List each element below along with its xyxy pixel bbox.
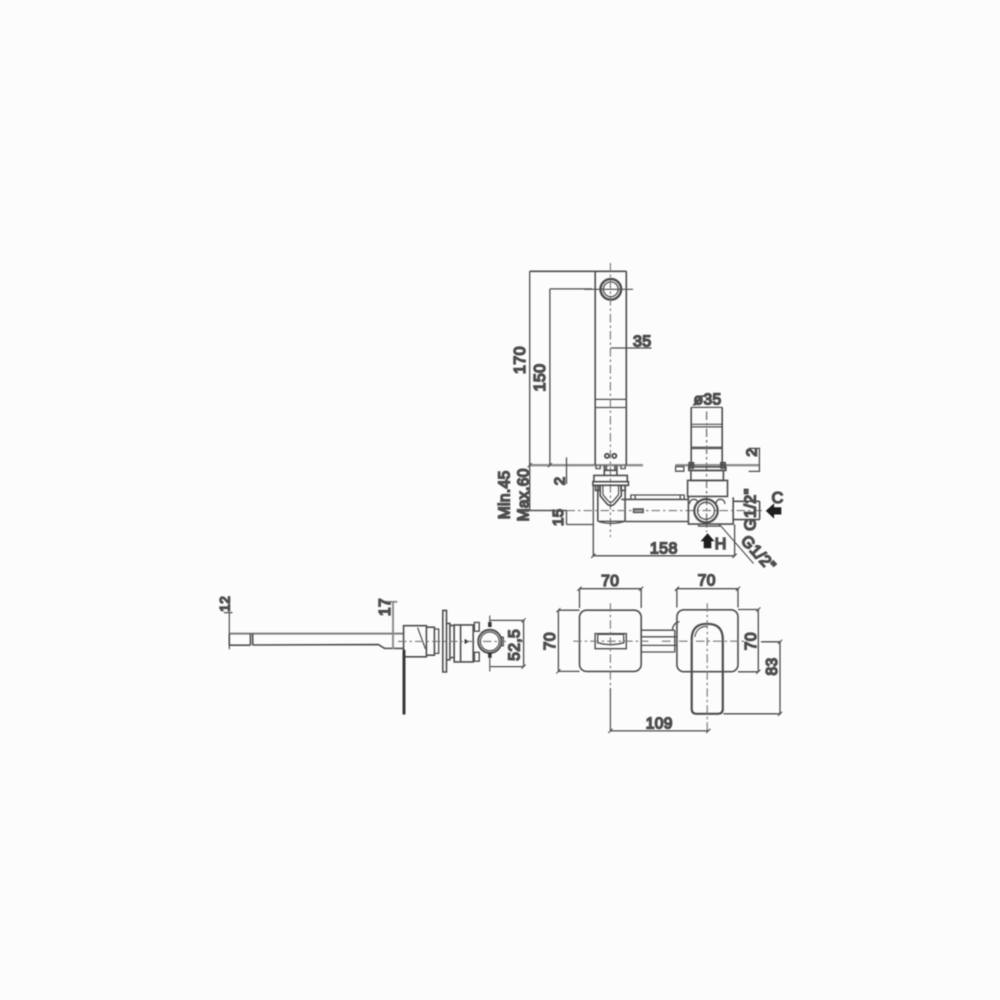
- svg-text:35: 35: [633, 334, 652, 351]
- svg-text:158: 158: [650, 541, 678, 558]
- svg-text:83: 83: [764, 657, 781, 675]
- svg-text:H: H: [715, 536, 727, 553]
- svg-text:109: 109: [646, 715, 673, 732]
- svg-text:2: 2: [551, 477, 568, 486]
- svg-text:G1/2": G1/2": [737, 533, 778, 576]
- svg-text:70: 70: [601, 573, 619, 590]
- svg-text:52,5: 52,5: [506, 629, 523, 661]
- svg-text:170: 170: [512, 346, 529, 374]
- svg-text:17: 17: [377, 598, 394, 616]
- svg-text:70: 70: [743, 632, 760, 650]
- svg-text:ø35: ø35: [694, 392, 722, 409]
- svg-text:Min.45: Min.45: [497, 470, 514, 519]
- svg-text:Max.60: Max.60: [515, 468, 532, 521]
- svg-text:2: 2: [743, 448, 760, 457]
- svg-text:G1/2": G1/2": [742, 488, 759, 530]
- svg-text:150: 150: [532, 364, 549, 392]
- svg-text:70: 70: [698, 573, 716, 590]
- svg-text:12: 12: [217, 596, 232, 612]
- svg-text:C: C: [772, 490, 784, 507]
- svg-text:70: 70: [542, 632, 559, 650]
